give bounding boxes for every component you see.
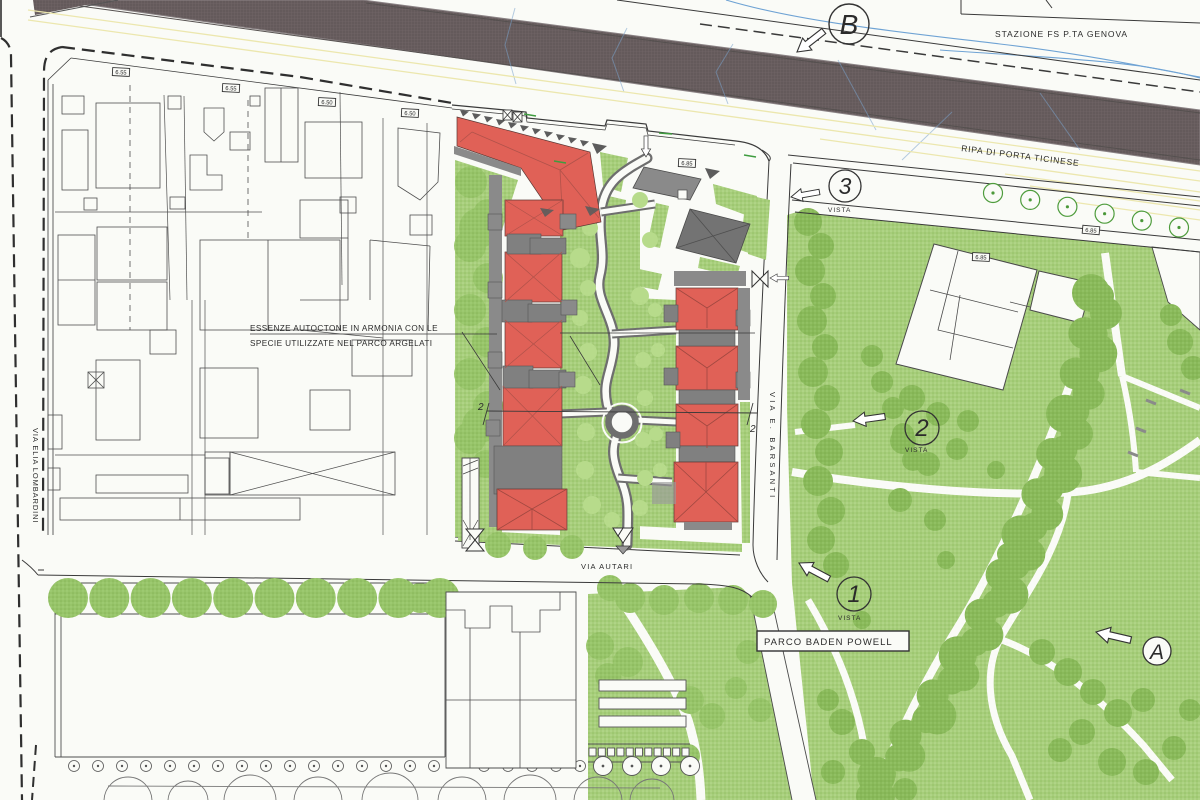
svg-text:6.85: 6.85 (1085, 228, 1097, 235)
svg-text:2: 2 (477, 402, 484, 413)
svg-text:VIA AUTARI: VIA AUTARI (581, 562, 633, 571)
svg-text:6.50: 6.50 (404, 111, 416, 118)
svg-text:1: 1 (847, 581, 860, 608)
svg-text:6.55: 6.55 (115, 70, 127, 77)
svg-text:VISTA: VISTA (828, 207, 851, 214)
svg-text:STAZIONE FS P.TA GENOVA: STAZIONE FS P.TA GENOVA (995, 29, 1128, 39)
svg-text:2: 2 (749, 424, 756, 435)
svg-text:A: A (1148, 641, 1164, 664)
svg-text:VISTA: VISTA (838, 615, 861, 622)
svg-text:3: 3 (839, 173, 852, 199)
svg-text:6.85: 6.85 (975, 255, 987, 262)
svg-text:VISTA: VISTA (905, 447, 928, 454)
svg-text:VIA ELIA LOMBARDINI: VIA ELIA LOMBARDINI (31, 428, 40, 523)
svg-text:SPECIE UTILIZZATE NEL PARCO: SPECIE UTILIZZATE NEL PARCO ARGELATI (250, 339, 432, 348)
svg-text:B: B (840, 9, 859, 40)
svg-text:6.55: 6.55 (225, 86, 237, 93)
svg-text:ESSENZE AUTOCTONE IN ARMONI: ESSENZE AUTOCTONE IN ARMONIA CON LE (250, 324, 438, 333)
svg-text:6.85: 6.85 (681, 161, 693, 168)
svg-text:PARCO BADEN POWELL: PARCO BADEN POWELL (764, 637, 893, 648)
svg-text:6.50: 6.50 (321, 100, 333, 107)
svg-text:VIA E. BARSANTI: VIA E. BARSANTI (768, 392, 777, 500)
svg-text:2: 2 (914, 415, 928, 442)
